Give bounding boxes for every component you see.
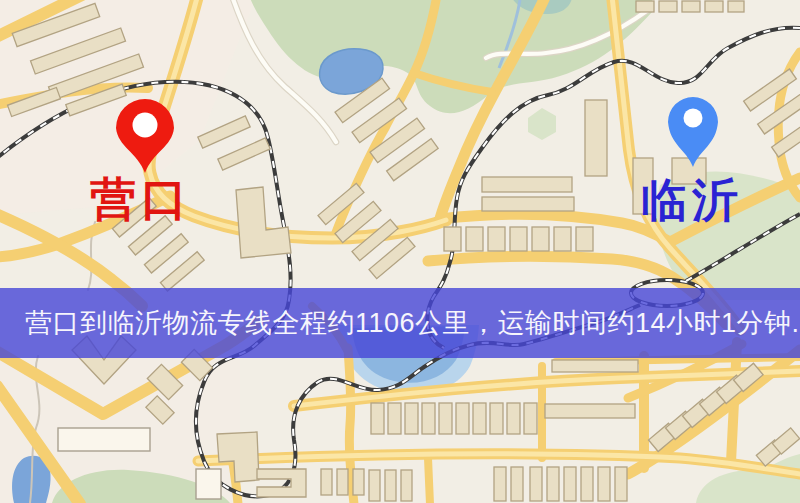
logistics-route-map: 营口 临沂 营口到临沂物流专线全程约1106公里，运输时间约14小时1分钟.	[0, 0, 800, 503]
destination-city-label: 临沂	[641, 177, 743, 223]
destination-pin-icon	[668, 97, 718, 167]
route-info-banner: 营口到临沂物流专线全程约1106公里，运输时间约14小时1分钟.	[0, 288, 800, 358]
origin-city-label: 营口	[90, 176, 192, 222]
map-canvas	[0, 0, 800, 503]
route-info-text: 营口到临沂物流专线全程约1106公里，运输时间约14小时1分钟.	[25, 305, 800, 341]
